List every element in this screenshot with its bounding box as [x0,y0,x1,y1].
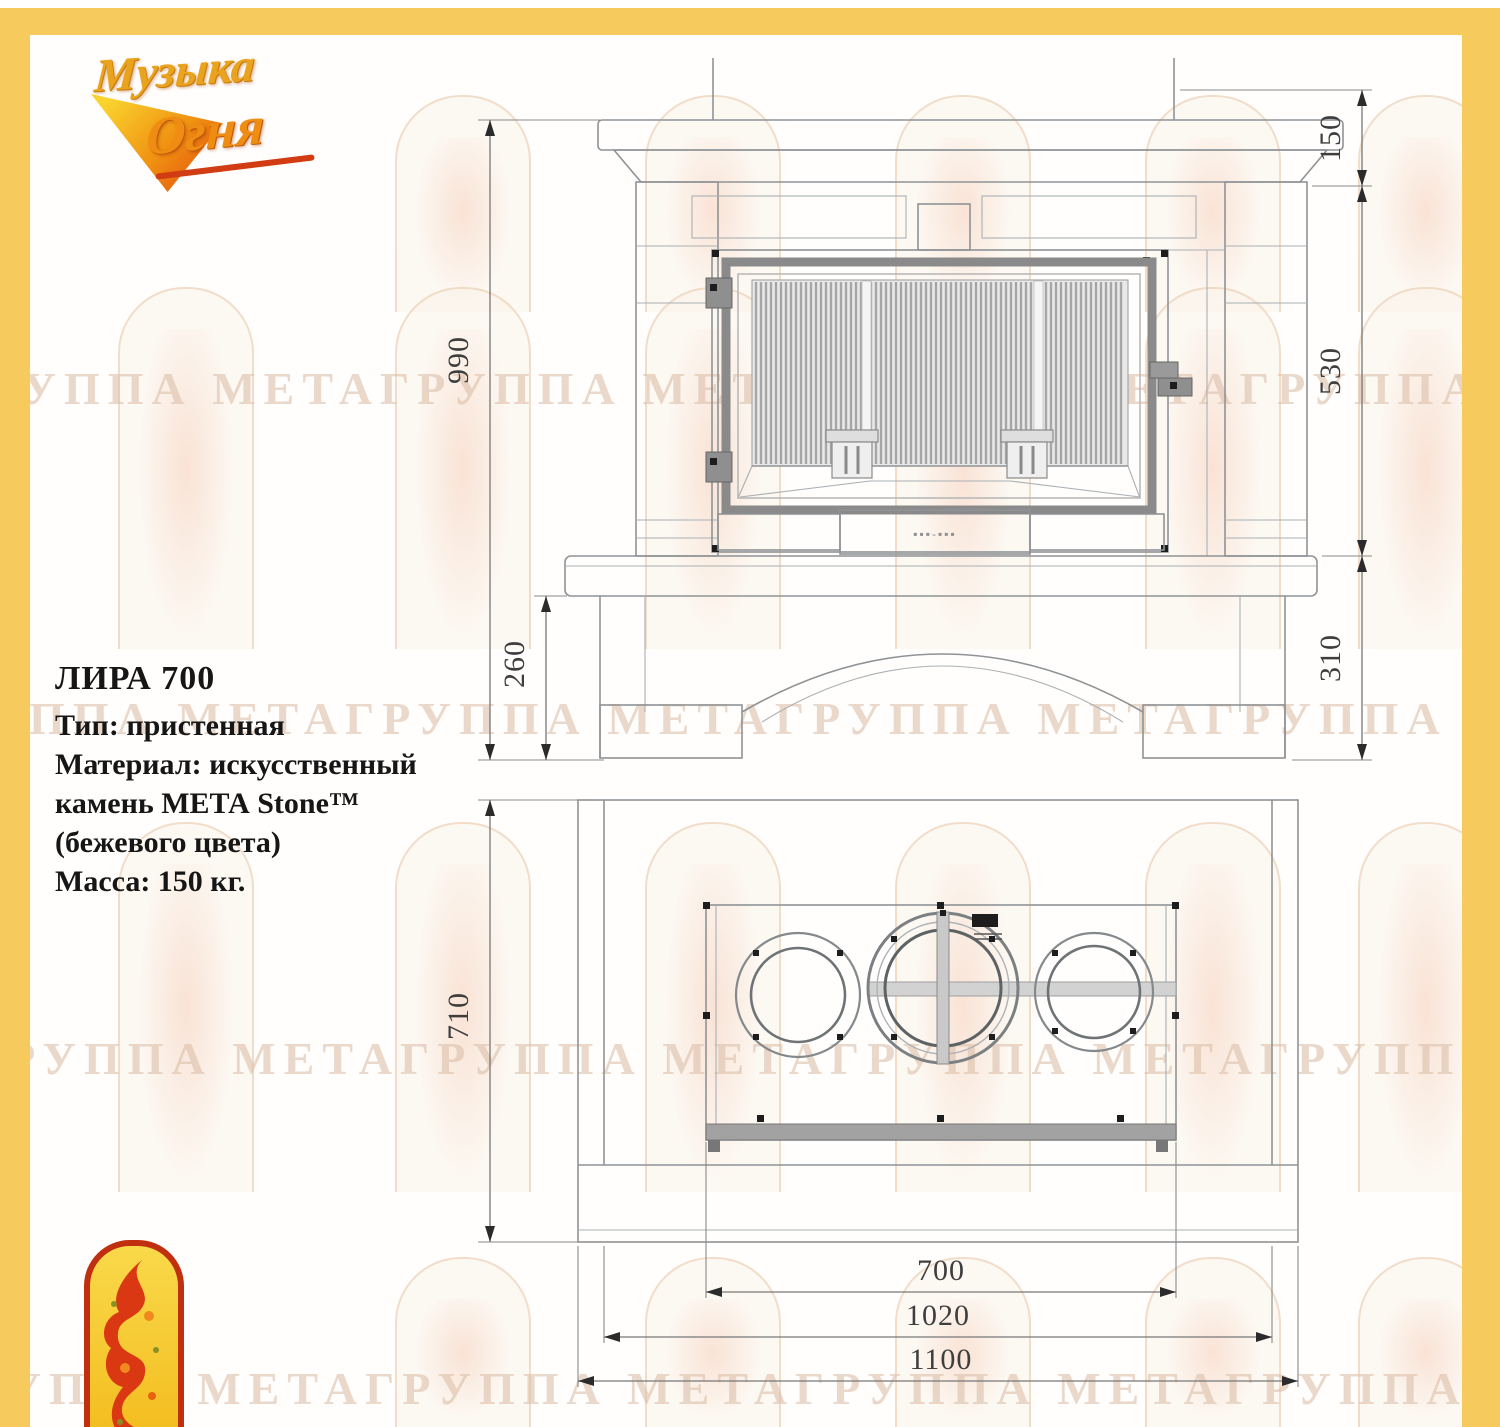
frame-right [1462,8,1500,1427]
base-arch [600,596,1285,758]
right-pillar [1225,182,1307,556]
spec-line-material-1: Материал: искусственный [55,745,495,784]
mantel-shelf [598,120,1343,150]
frame-left [0,8,30,1427]
dim-base-zone: 310 [1314,634,1347,682]
dim-inner-width: 1020 [906,1299,970,1332]
spec-line-color: (бежевого цвета) [55,823,495,862]
top-margin [0,0,1500,8]
logo-word-1: Музыка [93,39,257,104]
plan-circle-left [736,933,860,1057]
brand-logo: Музыка Огня [85,40,345,190]
dim-total-width: 1100 [910,1343,973,1376]
flame-dancer-emblem [84,1240,184,1427]
flame-dancer-icon [90,1246,178,1427]
front-view-drawing: ▪▪▪-▪▪▪ [565,58,1343,758]
frieze-keystone [918,204,970,250]
plan-view-drawing [578,800,1298,1242]
spec-line-material-2: камень МЕТА Stone™ [55,784,495,823]
door-sill-left [718,514,840,550]
product-specs: ЛИРА 700 Тип: пристенная Материал: искус… [55,660,495,901]
dim-firebox-zone: 530 [1314,347,1347,395]
andiron-right [1001,430,1053,478]
andiron-left [826,430,878,478]
dim-total-height: 990 [442,336,475,384]
product-title: ЛИРА 700 [55,660,495,698]
door-plate-marks: ▪▪▪-▪▪▪ [913,527,957,541]
dim-firebox-width: 700 [917,1254,965,1287]
frieze-panel-right [982,196,1196,238]
spec-line-type: Тип: пристенная [55,706,495,745]
mantel-lip [614,150,1327,182]
plan-dimensions: 710 700 1020 1100 [442,800,1298,1387]
door-sill-right [1030,514,1164,550]
logo-word-2: Огня [145,94,265,168]
dim-plinth-height: 260 [498,640,531,688]
frieze-panel-left [692,196,906,238]
base-foot-left [600,705,742,758]
dim-top-band: 150 [1314,114,1347,162]
hearth-shelf [565,556,1317,596]
frame-top [0,8,1500,35]
base-foot-right [1143,705,1285,758]
spec-sheet-page: ГРУППА МЕТАГРУППА МЕТАГРУППА МЕТАГРУППА … [0,0,1500,1427]
plan-door-band [706,1124,1176,1140]
spec-line-mass: Масса: 150 кг. [55,862,495,901]
plan-collector-band [868,982,1176,996]
dim-depth: 710 [442,992,475,1040]
